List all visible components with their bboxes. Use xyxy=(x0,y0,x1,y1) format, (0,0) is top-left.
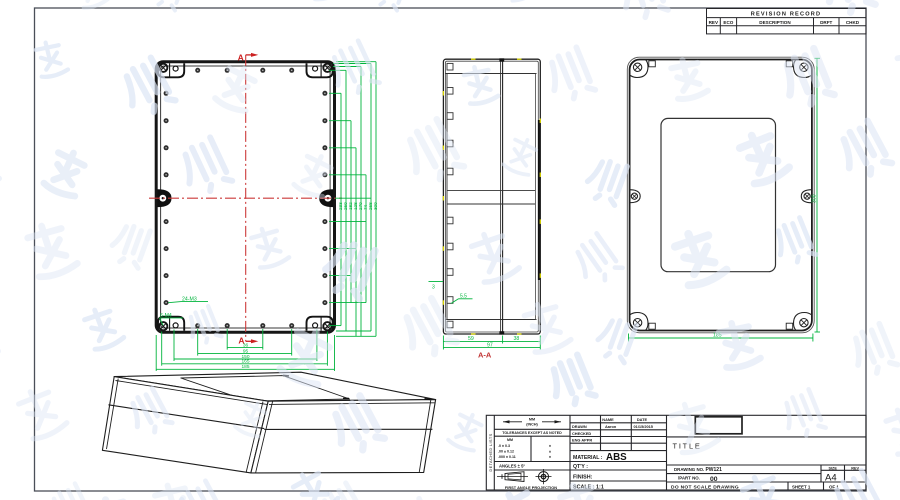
svg-text:NAME: NAME xyxy=(602,417,614,422)
svg-text:FINISH:: FINISH: xyxy=(573,474,593,480)
svg-text:MM: MM xyxy=(507,438,513,442)
svg-text:DATE: DATE xyxy=(637,417,648,422)
svg-text:ANGLES ± 5°: ANGLES ± 5° xyxy=(499,464,525,469)
svg-text:DRFT: DRFT xyxy=(820,20,832,25)
svg-text:REV: REV xyxy=(709,20,719,25)
svg-text:DRAWING NO. PW121: DRAWING NO. PW121 xyxy=(674,467,722,473)
svg-text:CHECKED: CHECKED xyxy=(572,431,591,436)
svg-text:REV: REV xyxy=(851,466,859,470)
svg-text:300: 300 xyxy=(373,202,378,210)
svg-text:ABS: ABS xyxy=(606,452,627,463)
svg-text:.0 ± 0.3: .0 ± 0.3 xyxy=(498,444,510,448)
svg-text:36: 36 xyxy=(243,342,249,348)
svg-text:A4: A4 xyxy=(825,472,837,483)
svg-text:A-A: A-A xyxy=(478,351,492,360)
svg-text:QT'Y :: QT'Y : xyxy=(573,464,588,470)
svg-text:95: 95 xyxy=(243,348,249,354)
svg-text:ECO: ECO xyxy=(723,20,733,25)
svg-text:ENG APPR: ENG APPR xyxy=(572,438,592,443)
svg-text:Aaron: Aaron xyxy=(605,424,617,429)
svg-text:00: 00 xyxy=(710,476,718,483)
svg-text:300: 300 xyxy=(812,194,818,203)
svg-text:01/15/2015: 01/15/2015 xyxy=(634,424,654,429)
svg-text:DRAWN: DRAWN xyxy=(572,424,587,429)
svg-text:DESCRIPTION: DESCRIPTION xyxy=(759,20,791,25)
svg-text:MM: MM xyxy=(529,418,535,422)
svg-text:165: 165 xyxy=(241,359,249,365)
svg-text:SHEET 1: SHEET 1 xyxy=(792,485,811,490)
svg-text:(INCH): (INCH) xyxy=(526,422,538,426)
svg-text:FIRST ANGLE PROJECTION: FIRST ANGLE PROJECTION xyxy=(505,485,557,490)
svg-text:185: 185 xyxy=(241,364,249,370)
svg-text:±: ± xyxy=(549,450,551,454)
svg-text:A: A xyxy=(238,52,244,62)
svg-text:.000 ± 0.11: .000 ± 0.11 xyxy=(498,455,516,459)
svg-text:MATERIAL :: MATERIAL : xyxy=(573,455,603,461)
svg-text:/PART NO.: /PART NO. xyxy=(678,476,700,481)
svg-text:.00 ± 0.12: .00 ± 0.12 xyxy=(498,450,514,454)
svg-text:38: 38 xyxy=(514,336,520,342)
svg-text:CHKD: CHKD xyxy=(846,20,860,25)
svg-text:REVISION RECORD: REVISION RECORD xyxy=(751,11,822,17)
svg-text:97: 97 xyxy=(487,342,493,348)
svg-text:TOLERANCES EXCEPT AS NOTED: TOLERANCES EXCEPT AS NOTED xyxy=(502,431,562,435)
svg-text:±: ± xyxy=(549,444,551,448)
svg-text:59: 59 xyxy=(468,336,474,342)
svg-text:SIZE: SIZE xyxy=(828,466,837,470)
svg-text:DO NOT SCALE DRAWING: DO NOT SCALE DRAWING xyxy=(671,485,739,491)
svg-text:DETACHED LISTS: DETACHED LISTS xyxy=(488,433,493,471)
svg-text:3: 3 xyxy=(432,285,435,291)
svg-text:±: ± xyxy=(549,455,551,459)
